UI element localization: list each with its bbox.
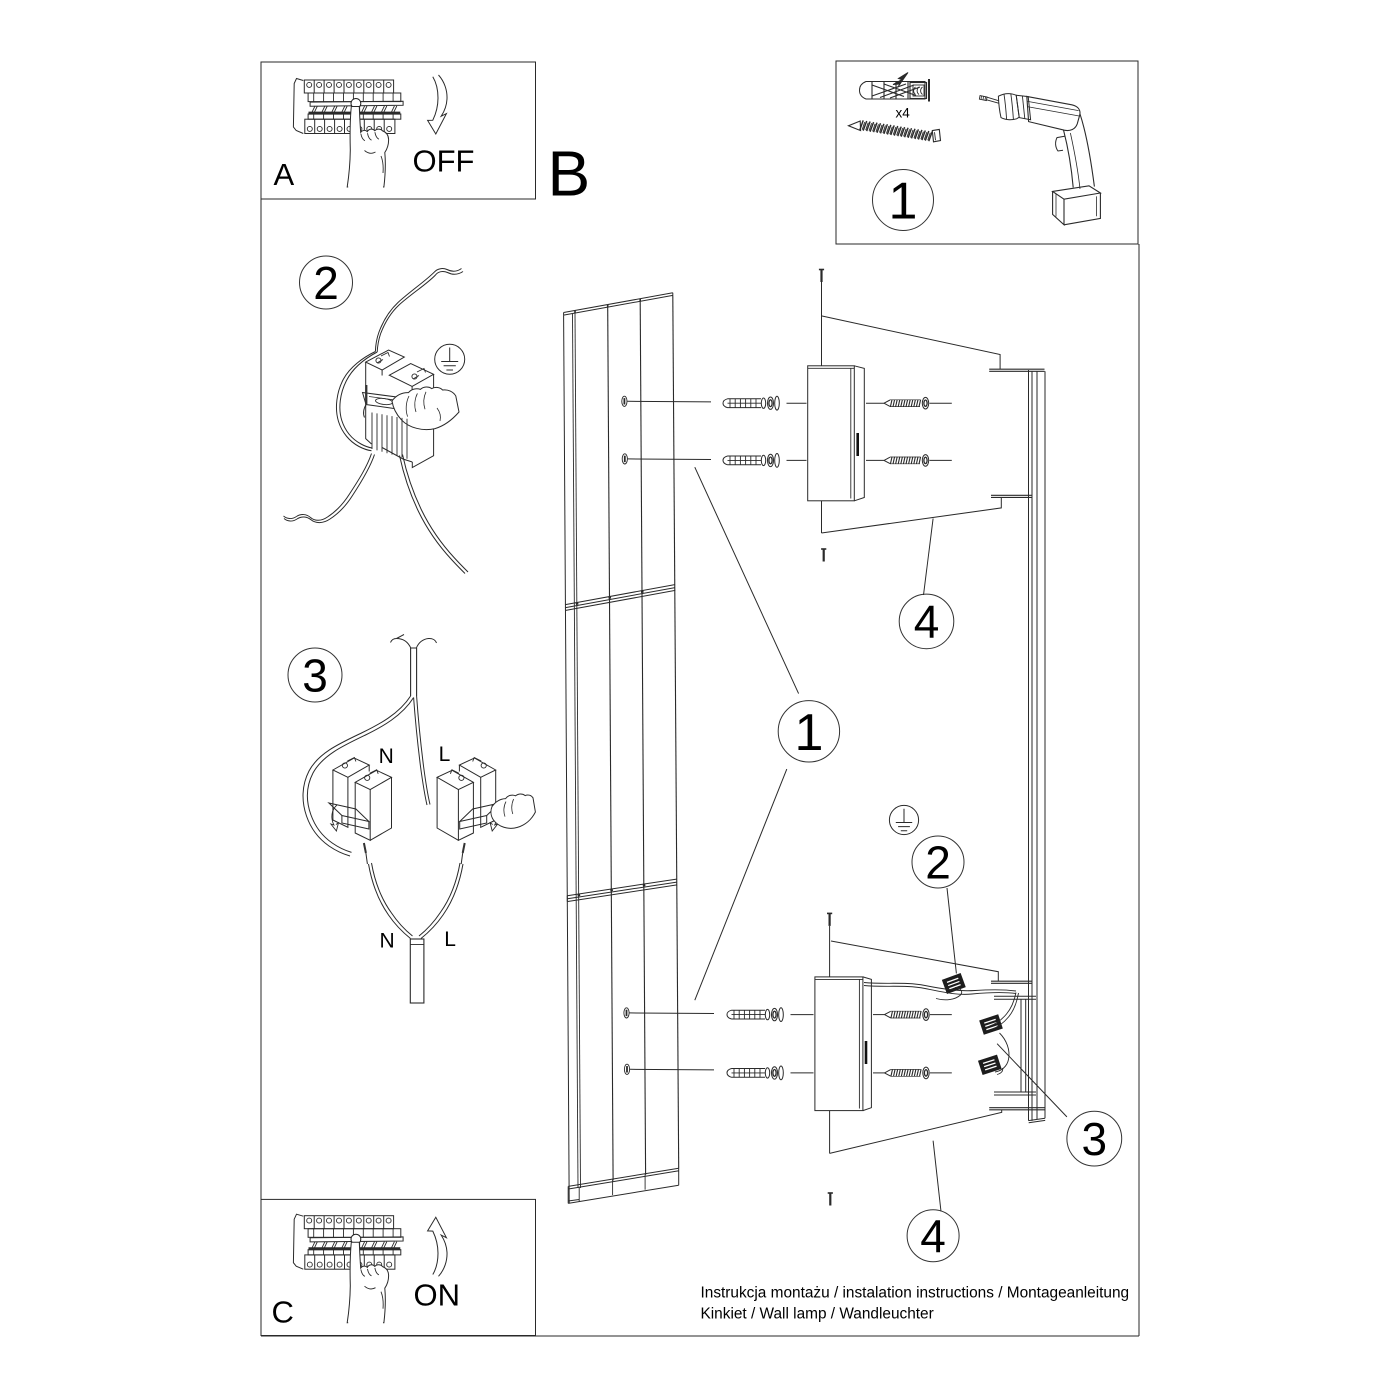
svg-text:N: N (380, 930, 395, 953)
svg-text:Instrukcja montażu / instalati: Instrukcja montażu / instalation instruc… (701, 1285, 1130, 1302)
svg-text:N: N (379, 745, 394, 768)
svg-text:2: 2 (925, 836, 951, 888)
svg-text:2: 2 (313, 257, 339, 309)
svg-text:B: B (548, 138, 591, 210)
svg-text:4: 4 (920, 1210, 946, 1262)
svg-text:A: A (274, 157, 295, 192)
svg-text:x4: x4 (896, 106, 911, 121)
svg-text:ON: ON (414, 1278, 461, 1313)
svg-text:3: 3 (1082, 1113, 1108, 1165)
svg-text:3: 3 (302, 649, 328, 701)
svg-text:1: 1 (889, 173, 918, 231)
svg-text:1: 1 (794, 704, 823, 762)
svg-text:Kinkiet / Wall lamp / Wandleuc: Kinkiet / Wall lamp / Wandleuchter (701, 1306, 934, 1323)
svg-text:OFF: OFF (413, 144, 475, 179)
svg-text:L: L (444, 928, 456, 951)
svg-text:4: 4 (914, 596, 940, 648)
svg-text:L: L (439, 743, 451, 766)
svg-text:C: C (272, 1295, 294, 1330)
